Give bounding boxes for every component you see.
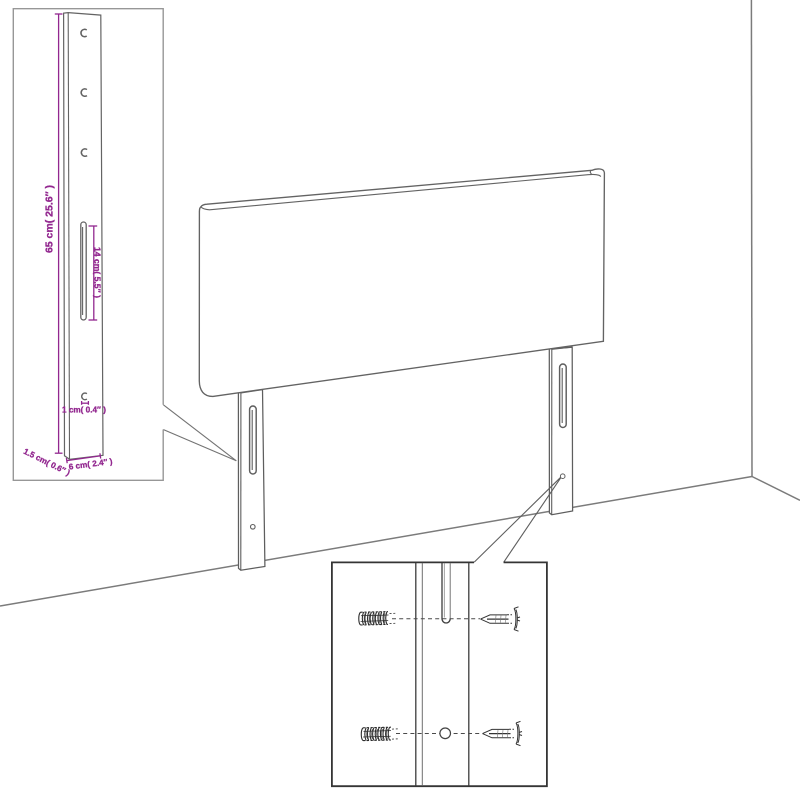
svg-text:14 cm( 5.5″ ): 14 cm( 5.5″ ) xyxy=(92,247,102,298)
svg-text:65 cm( 25.6″ ): 65 cm( 25.6″ ) xyxy=(43,185,55,253)
svg-text:1 cm( 0.4″ ): 1 cm( 0.4″ ) xyxy=(62,406,106,415)
